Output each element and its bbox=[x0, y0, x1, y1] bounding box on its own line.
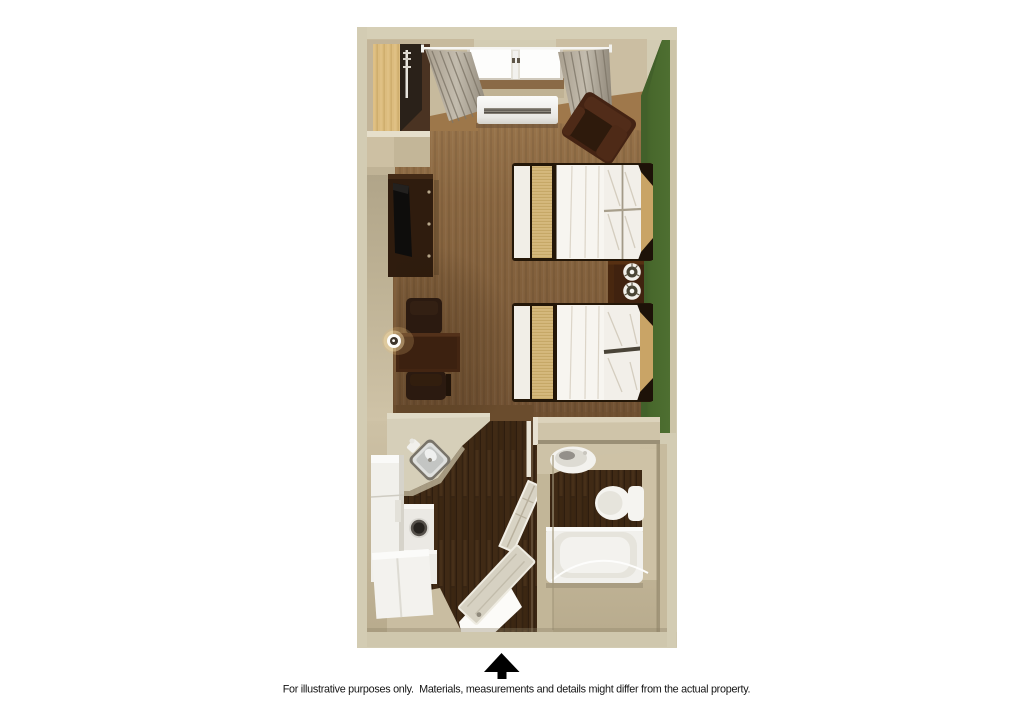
svg-text:For illustrative purposes only: For illustrative purposes only. Material… bbox=[283, 684, 751, 696]
